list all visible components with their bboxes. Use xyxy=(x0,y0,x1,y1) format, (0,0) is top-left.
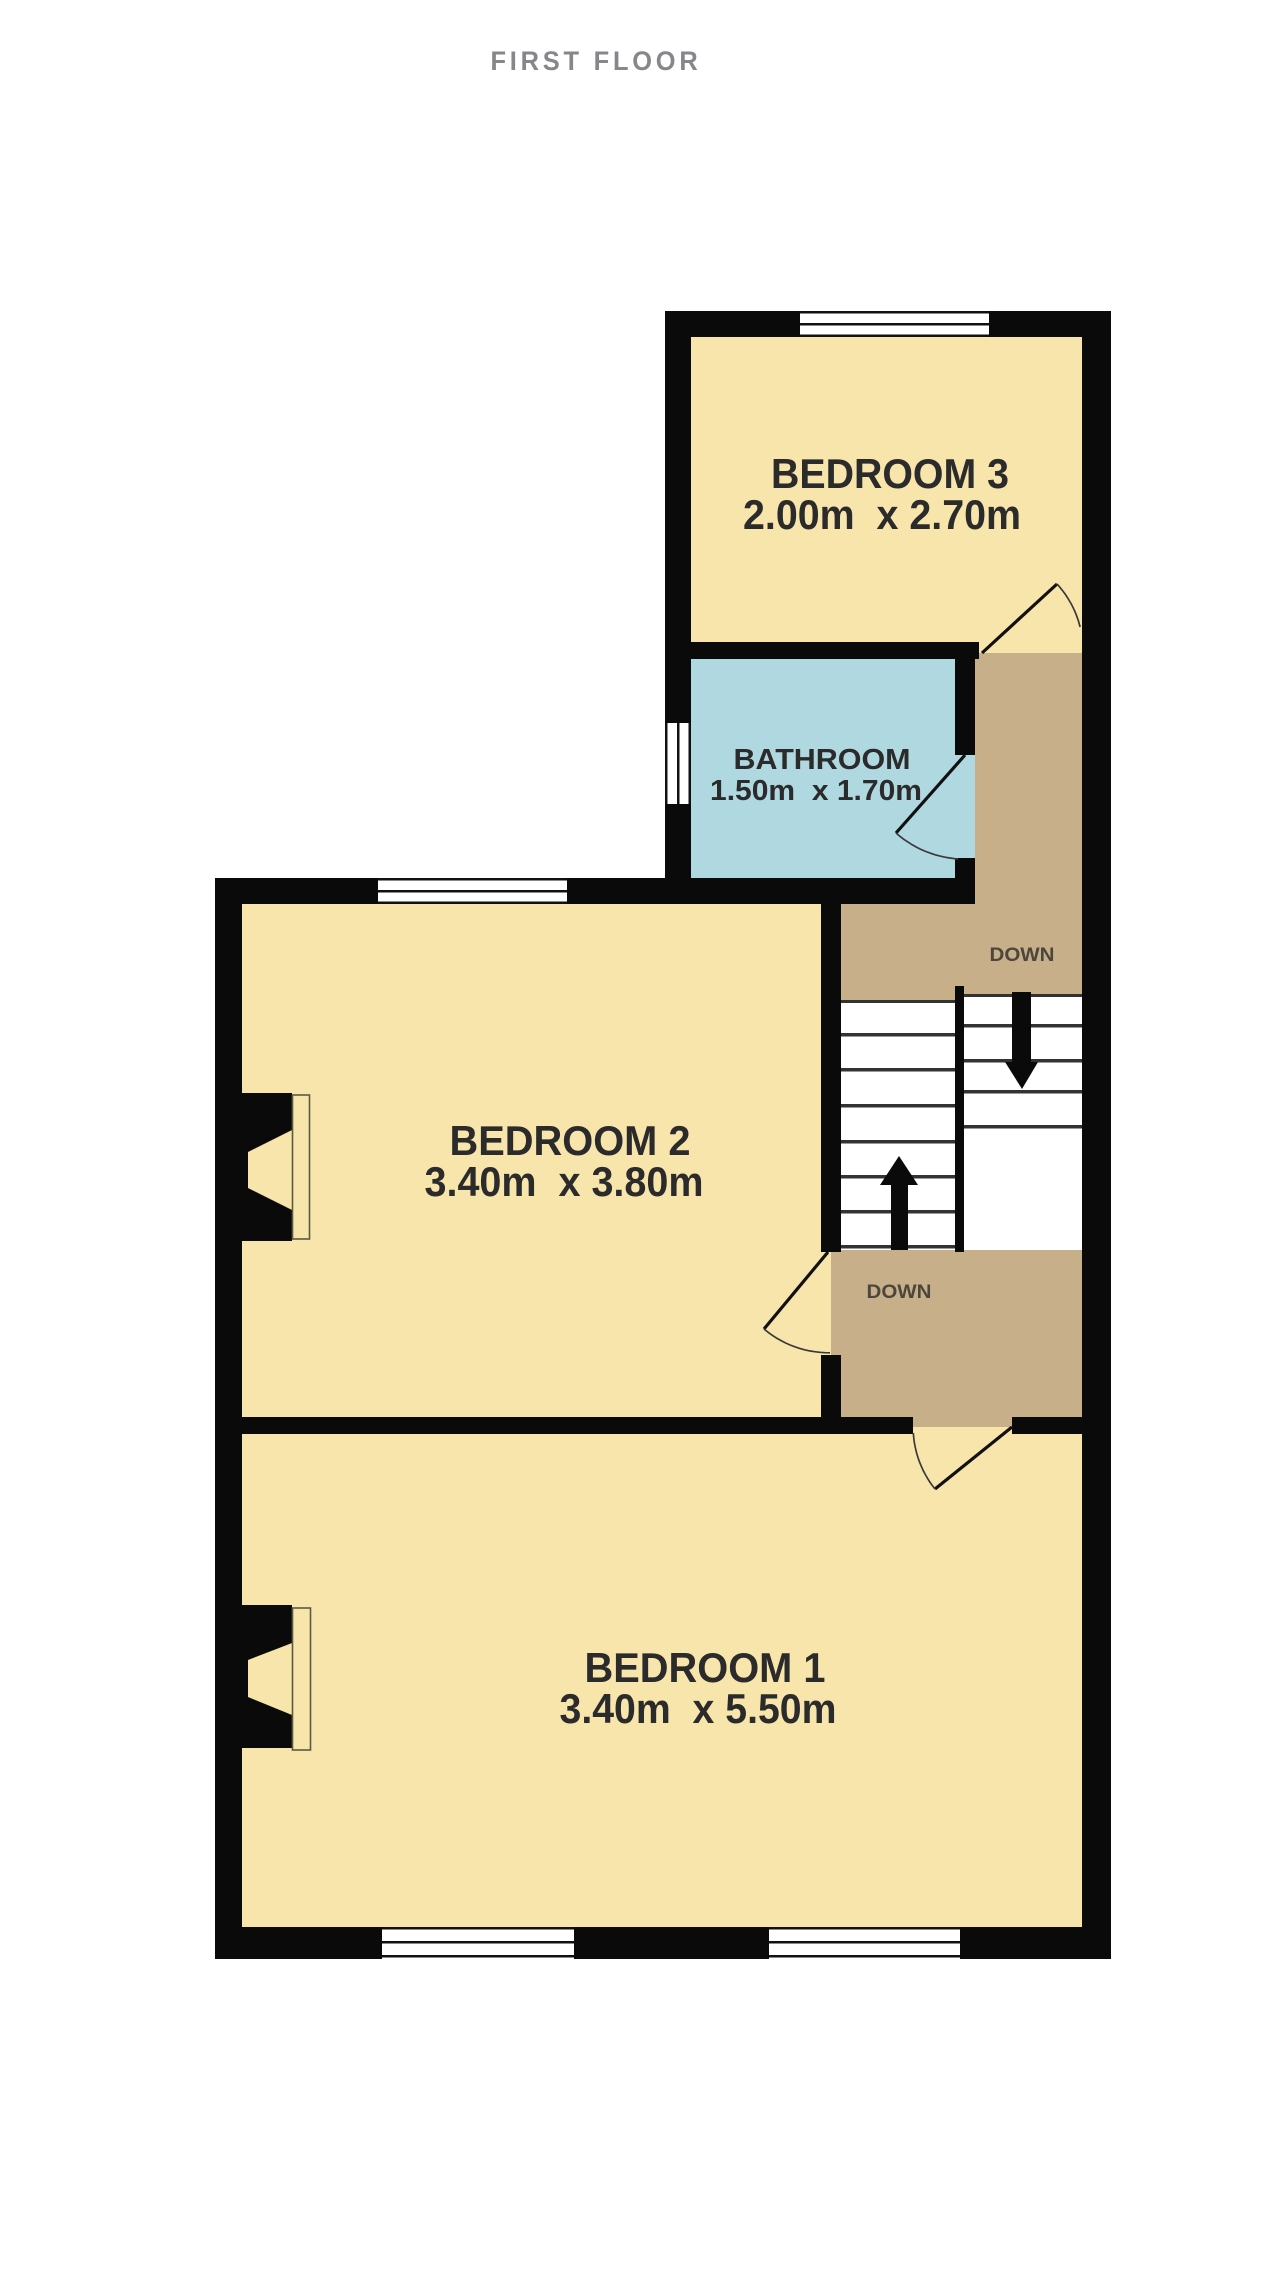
svg-text:DOWN: DOWN xyxy=(990,945,1055,966)
svg-text:DOWN: DOWN xyxy=(867,1282,932,1303)
svg-text:BEDROOM 1: BEDROOM 1 xyxy=(585,1644,826,1691)
svg-text:2.00m x 2.70m: 2.00m x 2.70m xyxy=(743,491,1021,538)
svg-text:1.50m x 1.70m: 1.50m x 1.70m xyxy=(710,775,922,807)
svg-text:3.40m x 5.50m: 3.40m x 5.50m xyxy=(560,1685,837,1732)
svg-text:BEDROOM 3: BEDROOM 3 xyxy=(771,450,1009,497)
svg-text:3.40m x 3.80m: 3.40m x 3.80m xyxy=(425,1158,704,1205)
svg-text:BATHROOM: BATHROOM xyxy=(734,744,911,776)
svg-text:FIRST FLOOR: FIRST FLOOR xyxy=(491,46,702,76)
svg-text:BEDROOM 2: BEDROOM 2 xyxy=(450,1117,691,1164)
